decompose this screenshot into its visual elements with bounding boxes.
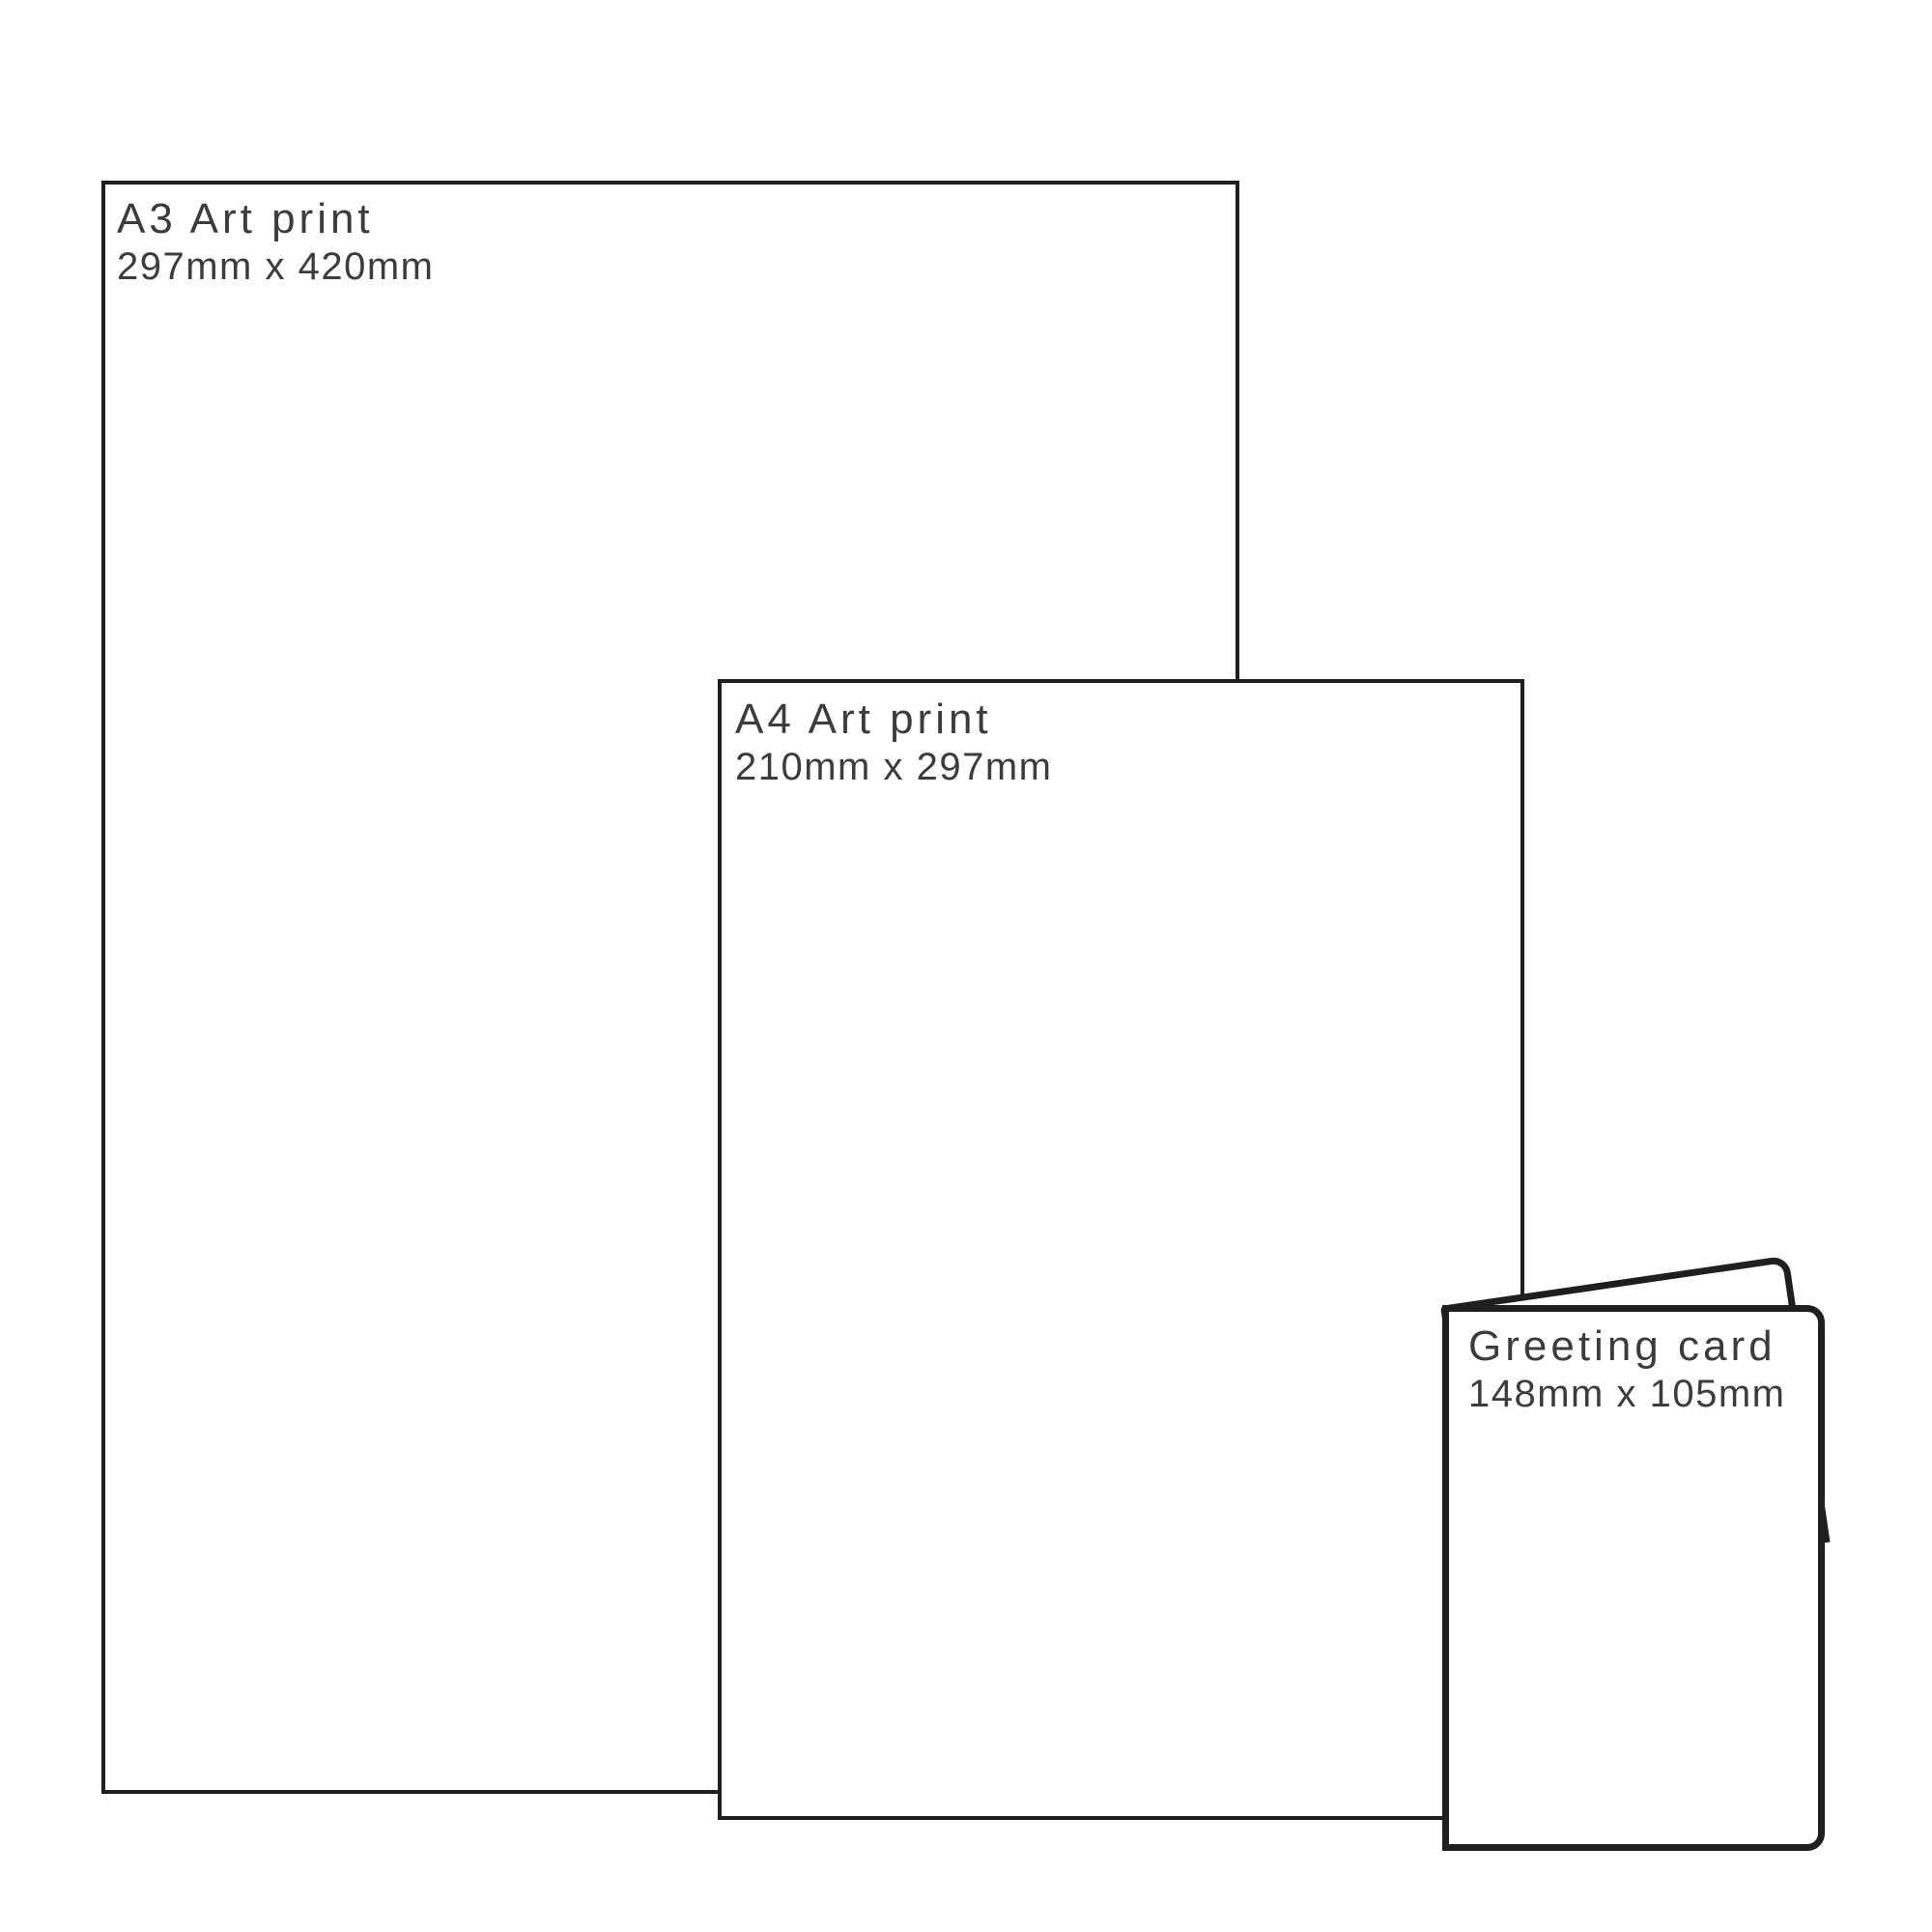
a3-print-label: A3 Art print 297mm x 420mm bbox=[117, 194, 434, 289]
print-size-comparison-diagram: A3 Art print 297mm x 420mm A4 Art print … bbox=[0, 0, 1932, 1932]
a4-print-title: A4 Art print bbox=[735, 695, 1052, 745]
greeting-card-label: Greeting card 148mm x 105mm bbox=[1468, 1321, 1785, 1416]
a4-print-outline: A4 Art print 210mm x 297mm bbox=[718, 679, 1524, 1820]
greeting-card-outline: Greeting card 148mm x 105mm bbox=[1442, 1305, 1825, 1851]
greeting-card-title: Greeting card bbox=[1468, 1321, 1785, 1372]
a3-print-dimensions: 297mm x 420mm bbox=[117, 244, 434, 289]
greeting-card-dimensions: 148mm x 105mm bbox=[1468, 1372, 1785, 1416]
a4-print-label: A4 Art print 210mm x 297mm bbox=[735, 695, 1052, 789]
a3-print-title: A3 Art print bbox=[117, 194, 434, 244]
a4-print-dimensions: 210mm x 297mm bbox=[735, 745, 1052, 789]
